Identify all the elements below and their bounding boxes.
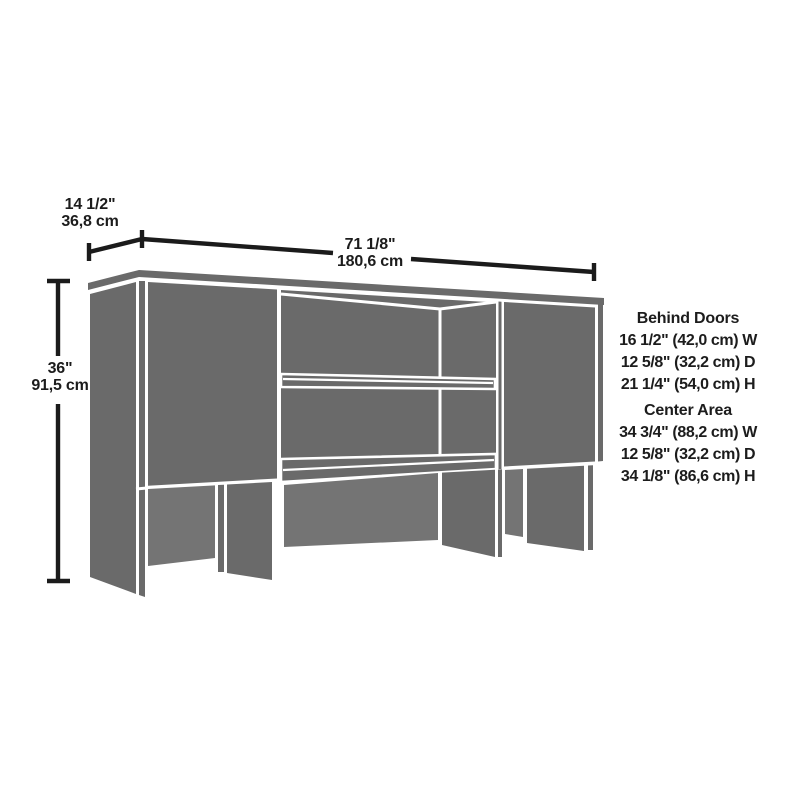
left-side-panel [90, 282, 136, 594]
width-metric: 180,6 cm [310, 253, 430, 270]
under-left-back-panel [148, 485, 215, 566]
under-center-back-panel [284, 473, 438, 547]
depth-imperial: 14 1/2" [30, 196, 150, 213]
center-area-width: 34 3/4" (88,2 cm) W [568, 422, 800, 444]
under-left-support-panel [227, 482, 272, 580]
depth-metric: 36,8 cm [30, 213, 150, 230]
under-left-support-edge [218, 485, 224, 572]
under-right-back-panel [505, 469, 523, 537]
center-right-divider-edge [499, 302, 502, 470]
spec-center-area: Center Area 34 3/4" (88,2 cm) W 12 5/8" … [568, 400, 800, 488]
left-door-panel [148, 282, 277, 486]
under-center-support-panel [442, 470, 495, 557]
center-area-depth: 12 5/8" (32,2 cm) D [568, 444, 800, 466]
width-dimension-label: 71 1/8" 180,6 cm [310, 236, 430, 270]
left-front-edge [139, 281, 145, 597]
behind-doors-title: Behind Doors [568, 308, 800, 330]
hutch-body [88, 270, 604, 597]
height-dimension-line [47, 281, 70, 581]
behind-doors-height: 21 1/4" (54,0 cm) H [568, 374, 800, 396]
behind-doors-width: 16 1/2" (42,0 cm) W [568, 330, 800, 352]
height-dimension-label: 36" 91,5 cm [0, 360, 120, 394]
spec-behind-doors: Behind Doors 16 1/2" (42,0 cm) W 12 5/8"… [568, 308, 800, 396]
dimension-diagram: 14 1/2" 36,8 cm 71 1/8" 180,6 cm 36" 91,… [0, 0, 800, 800]
center-area-title: Center Area [568, 400, 800, 422]
under-center-support-edge [498, 469, 502, 557]
center-area-height: 34 1/8" (86,6 cm) H [568, 466, 800, 488]
behind-doors-depth: 12 5/8" (32,2 cm) D [568, 352, 800, 374]
height-imperial: 36" [0, 360, 120, 377]
depth-dimension-label: 14 1/2" 36,8 cm [30, 196, 150, 230]
height-metric: 91,5 cm [0, 377, 120, 394]
depth-dimension-line [89, 239, 142, 261]
width-imperial: 71 1/8" [310, 236, 430, 253]
